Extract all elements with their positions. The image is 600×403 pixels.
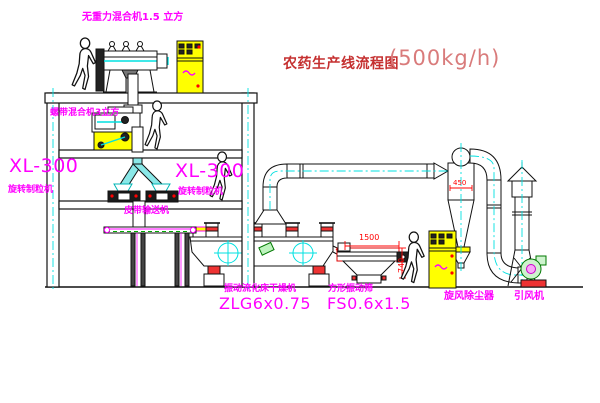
exhaust-duct-drawing xyxy=(263,163,448,210)
granulators-drawing xyxy=(108,184,178,202)
dimension-screen-length: 1500 xyxy=(359,233,379,242)
person-figure-2 xyxy=(145,101,167,149)
control-cabinet-ground xyxy=(429,231,456,288)
y-chute-drawing xyxy=(119,158,164,186)
person-figure-1 xyxy=(72,38,95,89)
label-cyclone: 旋风除尘器 xyxy=(444,292,494,302)
induced-draft-fan-drawing xyxy=(521,256,546,287)
diagram-title: 农药生产线流程图 xyxy=(283,53,399,73)
label-top-mixer: 无重力混合机1.5 立方 xyxy=(82,13,183,23)
label-fan: 引风机 xyxy=(514,292,544,302)
label-screen-model: FS0.6x1.5 xyxy=(327,296,411,312)
dimension-cyclone-diameter: 450 xyxy=(453,179,466,187)
label-floor2-mixer: 螺带混合机3立方 xyxy=(50,109,119,118)
label-granulator-right-model: XL-300 xyxy=(175,162,244,181)
dimension-screen-height: 740 xyxy=(397,258,406,273)
label-granulator-left-name: 旋转制粒机 xyxy=(8,186,53,195)
flow-diagram-canvas: 农药生产线流程图 (500kg/h) 无重力混合机1.5 立方 螺带混合机3立方… xyxy=(0,0,600,403)
label-dryer-name: 振动流化床干燥机 xyxy=(224,285,296,294)
label-granulator-right-name: 旋转制粒机 xyxy=(178,188,223,197)
control-cabinet-roof xyxy=(177,41,203,93)
label-granulator-left-model: XL-300 xyxy=(9,157,78,176)
label-screen-name: 方形振动筛 xyxy=(328,285,373,294)
label-belt-conveyor: 皮带输送机 xyxy=(124,207,169,216)
diagram-capacity: (500kg/h) xyxy=(389,46,500,70)
label-dryer-model: ZLG6x0.75 xyxy=(219,296,311,312)
